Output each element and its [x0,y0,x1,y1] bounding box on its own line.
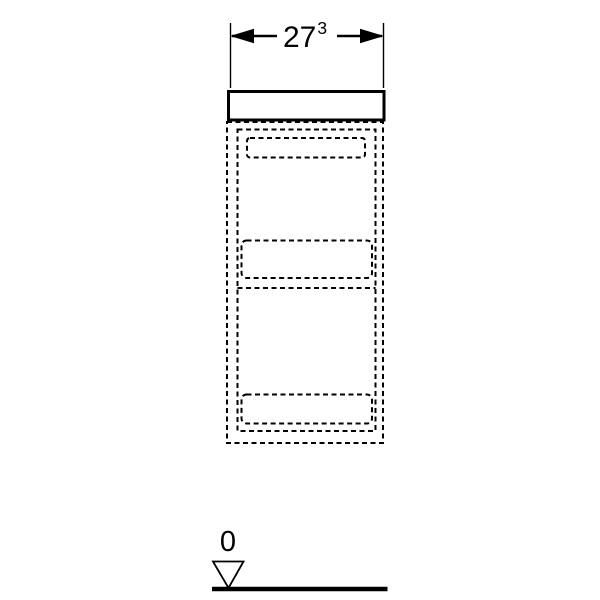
technical-drawing-page: 273 0 [0,0,600,600]
width-dimension: 273 [230,18,384,88]
datum-zero-label: 0 [220,526,236,558]
cabinet-hidden-outline [227,122,383,443]
cabinet-outline-inner [238,130,376,432]
cabinet-technical-drawing: 273 0 [0,0,600,600]
dimension-value: 27 [283,21,316,54]
floor-datum: 0 [212,526,388,589]
bottom-shelf-outline [242,395,373,424]
datum-triangle-icon [213,562,244,589]
dimension-arrowhead-right-icon [360,29,384,43]
top-drawer-outline [247,138,365,158]
dimension-arrowhead-left-icon [230,29,254,43]
top-panel [229,92,385,121]
dimension-label: 273 [283,18,327,54]
dimension-superscript: 3 [317,18,327,38]
middle-shelf-outline [242,241,373,279]
